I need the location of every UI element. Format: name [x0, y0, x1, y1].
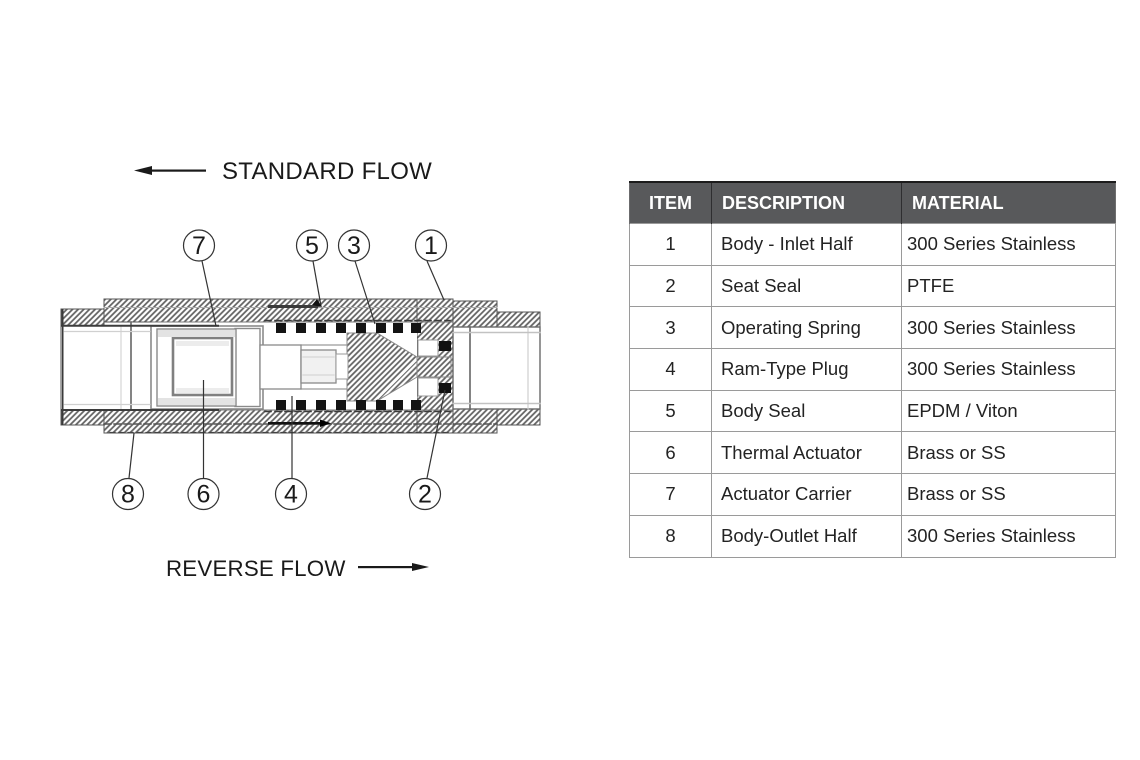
svg-text:3: 3 [347, 232, 361, 260]
svg-text:7: 7 [192, 232, 206, 260]
svg-text:STANDARD FLOW: STANDARD FLOW [222, 158, 432, 185]
svg-text:8: 8 [121, 481, 135, 509]
svg-text:2: 2 [418, 481, 432, 509]
svg-text:6: 6 [197, 481, 211, 509]
svg-text:5: 5 [305, 232, 319, 260]
svg-text:1: 1 [424, 232, 438, 260]
svg-text:4: 4 [284, 481, 298, 509]
svg-text:REVERSE FLOW: REVERSE FLOW [166, 556, 346, 581]
